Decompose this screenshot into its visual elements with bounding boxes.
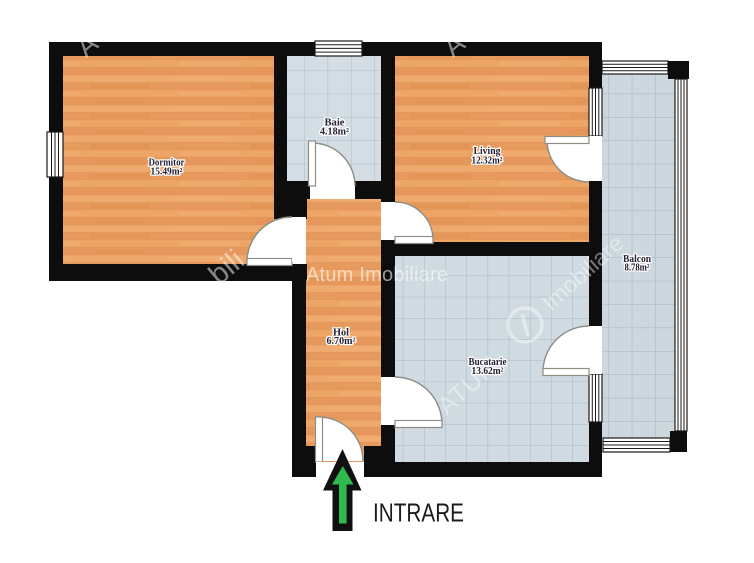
svg-text:Atum Imobiliare: Atum Imobiliare (306, 264, 448, 286)
svg-text:12.32m²: 12.32m² (472, 156, 503, 167)
svg-text:4.18m²: 4.18m² (320, 127, 349, 138)
svg-text:INTRARE: INTRARE (373, 500, 464, 528)
svg-text:13.62m²: 13.62m² (472, 366, 504, 377)
svg-text:8.78m²: 8.78m² (625, 263, 650, 274)
svg-text:15.49m²: 15.49m² (151, 167, 183, 178)
svg-text:6.70m²: 6.70m² (327, 336, 356, 347)
